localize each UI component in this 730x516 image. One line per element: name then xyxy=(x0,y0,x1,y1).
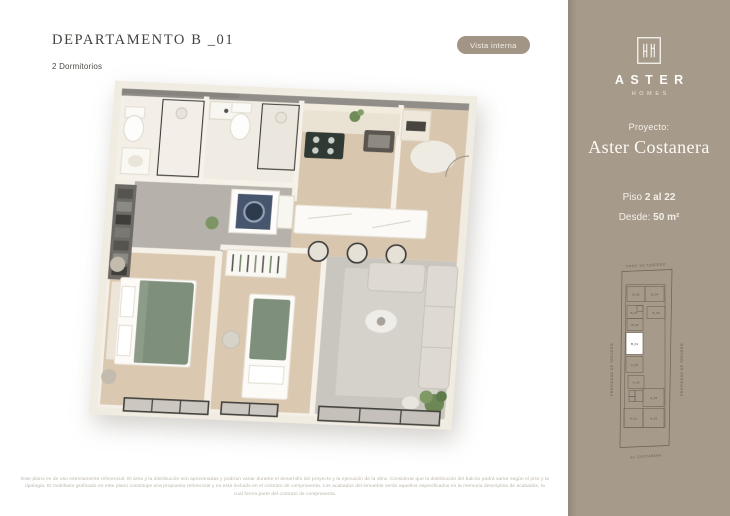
laundry-closet xyxy=(229,189,295,235)
disclaimer: Este plano es de uso estrictamente refer… xyxy=(18,476,552,498)
keyplan-diagram: PROP. DE TERCERO AV. COSTANERA PROPIEDAD… xyxy=(597,248,701,466)
sidebar: ASTER HOMES Proyecto: Aster Costanera Pi… xyxy=(568,0,730,516)
keyplan-right-label: PROPIEDAD DE TERCERO xyxy=(680,343,684,396)
unit-label-a03: A_03 xyxy=(650,396,657,400)
unit-label-a06: A_06 xyxy=(631,363,638,367)
project-block: Proyecto: Aster Costanera xyxy=(568,122,730,158)
unit-label-b01: B_01 xyxy=(631,342,638,346)
area-from: Desde: 50 m² xyxy=(568,212,730,223)
disclaimer-line: cual forma parte del contrato de comprav… xyxy=(18,491,552,498)
unit-label-b04: B_04 xyxy=(651,293,658,297)
page-subtitle: 2 Dormitorios xyxy=(52,62,102,71)
aster-homes-logo: ASTER HOMES xyxy=(568,34,730,97)
from-value: 50 m² xyxy=(653,212,679,223)
from-label: Desde: xyxy=(619,212,651,223)
keyplan-left-label: PROPIEDAD DE TERCERO xyxy=(610,343,614,396)
floor-plan-3d xyxy=(86,78,481,437)
main-content-area: DEPARTAMENTO B _01 2 Dormitorios Vista i… xyxy=(0,0,568,516)
unit-label-b05: B_05 xyxy=(632,293,639,297)
disclaimer-line: Este plano es de uso estrictamente refer… xyxy=(18,476,552,483)
aster-logo-icon xyxy=(634,34,664,67)
keyplan-top-label: PROP. DE TERCERO xyxy=(626,262,666,268)
floor-range: Piso 2 al 22 xyxy=(568,192,730,203)
disclaimer-line: tipología. El mobiliario graficado en es… xyxy=(18,483,552,490)
unit-label-b07: B_07 xyxy=(630,311,637,315)
logo-brand-text: ASTER xyxy=(568,73,730,87)
page-title: DEPARTAMENTO B _01 xyxy=(52,32,234,49)
unit-label-b02: B_02 xyxy=(631,323,638,327)
bathroom-1 xyxy=(120,98,204,177)
project-label: Proyecto: xyxy=(568,122,730,132)
logo-subbrand-text: HOMES xyxy=(568,91,730,97)
keyplan-bottom-label: AV. COSTANERA xyxy=(630,453,662,459)
floor-label: Piso xyxy=(623,192,642,203)
unit-label-a02: A_02 xyxy=(650,417,657,421)
project-specs: Piso 2 al 22 Desde: 50 m² xyxy=(568,192,730,232)
keyplan-units-outlines xyxy=(624,285,665,428)
vista-interna-button[interactable]: Vista interna xyxy=(457,36,530,54)
unit-label-a04: A_04 xyxy=(632,381,639,385)
unit-label-b06: B_06 xyxy=(652,311,659,315)
floor-plan-render xyxy=(86,78,481,437)
unit-label-a01: A_01 xyxy=(630,417,637,421)
project-name: Aster Costanera xyxy=(568,137,730,158)
floor-value: 2 al 22 xyxy=(645,192,676,203)
